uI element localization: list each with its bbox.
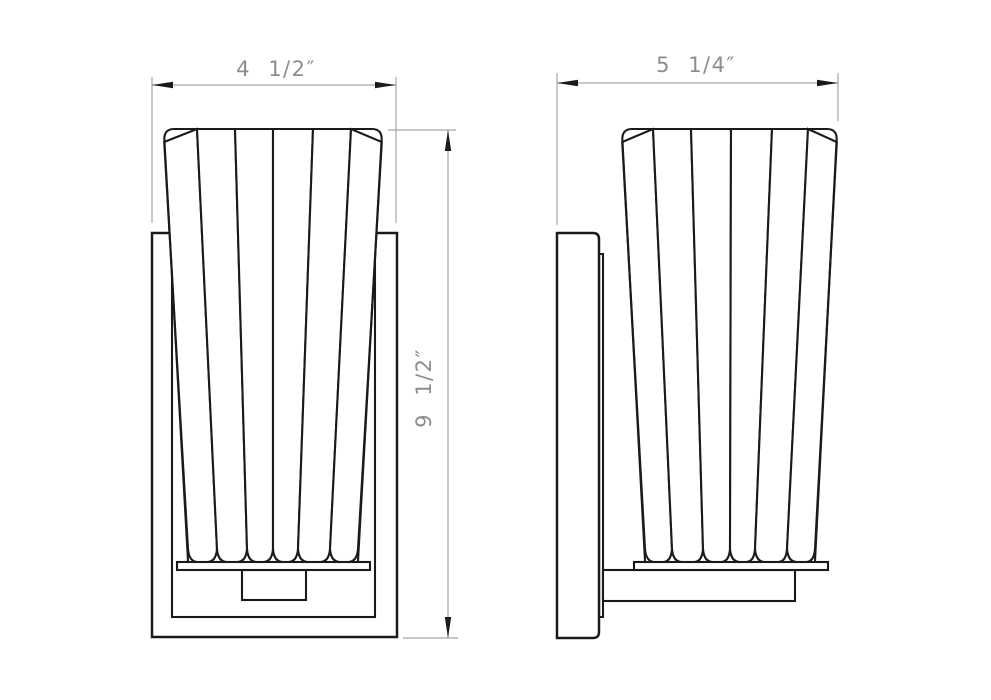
sconce-technical-drawing: 4 1/2″ 5 1/4″ 9 1/2″ xyxy=(0,0,991,700)
side-wall-plate xyxy=(557,233,599,638)
arrowhead-top xyxy=(445,130,451,151)
arrowhead-right xyxy=(375,82,396,88)
side-glass-holder-plate xyxy=(634,562,828,570)
arrowhead-left xyxy=(557,80,578,86)
arrowhead-left xyxy=(152,82,173,88)
side-depth-dimension-label: 5 1/4″ xyxy=(656,53,736,77)
height-dimension-label: 9 1/2″ xyxy=(412,348,436,428)
side-glass-shade xyxy=(622,129,837,562)
front-glass-holder-plate xyxy=(177,562,370,570)
front-glass-shade xyxy=(164,129,382,562)
dimension-height: 9 1/2″ xyxy=(388,130,458,638)
side-mounting-arm xyxy=(603,570,795,601)
drawing-page: 4 1/2″ 5 1/4″ 9 1/2″ xyxy=(0,0,991,700)
front-view xyxy=(152,129,397,637)
front-socket-cover xyxy=(242,570,306,600)
arrowhead-right xyxy=(817,80,838,86)
arrowhead-bottom xyxy=(445,617,451,638)
side-view xyxy=(557,129,837,638)
front-width-dimension-label: 4 1/2″ xyxy=(236,57,316,81)
